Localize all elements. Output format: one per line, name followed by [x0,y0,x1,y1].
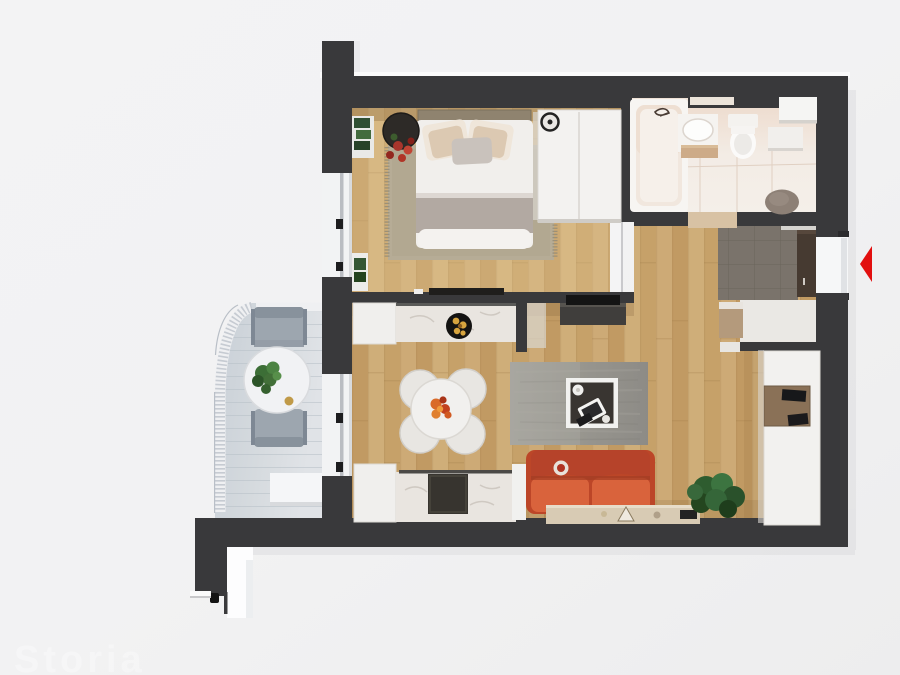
svg-text:Storia: Storia [14,639,146,675]
